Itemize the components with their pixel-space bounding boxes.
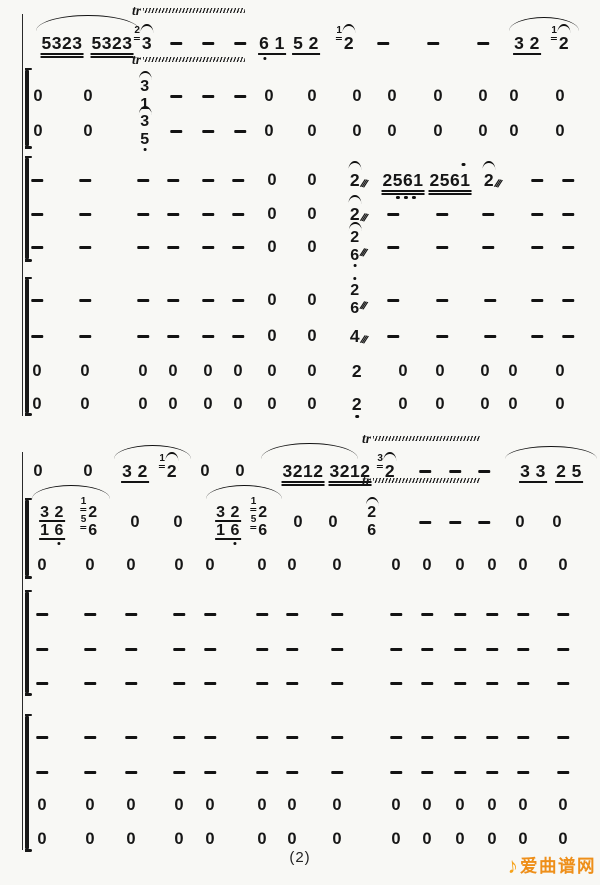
rest-zero: 0 bbox=[422, 555, 431, 575]
rest-zero: 0 bbox=[264, 86, 273, 106]
note-cell: 12 bbox=[88, 504, 97, 522]
dash-rest bbox=[167, 213, 179, 217]
note-digits: 2 bbox=[352, 394, 362, 414]
dash-rest bbox=[427, 42, 439, 46]
trill-mark: tr bbox=[362, 433, 480, 445]
dash-rest bbox=[84, 648, 96, 652]
dash-rest bbox=[562, 179, 574, 183]
note-cell: 3 bbox=[140, 113, 149, 131]
tremolo-icon: /// bbox=[360, 301, 367, 312]
tie-arc-icon bbox=[482, 161, 495, 170]
rest-zero: 0 bbox=[487, 829, 496, 849]
rest-zero: 0 bbox=[433, 86, 442, 106]
dash-rest bbox=[79, 335, 91, 339]
dash-rest bbox=[562, 335, 574, 339]
note-cell: 12 bbox=[167, 461, 177, 481]
notation-row: 002/// bbox=[0, 204, 600, 224]
tie-arc-icon bbox=[139, 71, 152, 80]
note-digits: 3 bbox=[140, 80, 149, 94]
note-cell: 3 bbox=[140, 78, 149, 96]
dash-rest bbox=[486, 613, 498, 617]
dash-rest bbox=[484, 335, 496, 339]
dash-rest bbox=[36, 736, 48, 740]
dash-rest bbox=[202, 179, 214, 183]
notation-row: tr003100000000 bbox=[0, 86, 600, 106]
slur-arc bbox=[32, 485, 110, 499]
note-digits: 3212 bbox=[283, 461, 324, 481]
dash-rest bbox=[286, 648, 298, 652]
rest-zero: 0 bbox=[267, 394, 276, 414]
note-digits: 4 bbox=[350, 326, 360, 346]
dash-rest bbox=[517, 682, 529, 686]
note-digits: 2 bbox=[258, 506, 267, 520]
rest-zero: 0 bbox=[257, 829, 266, 849]
octave-dot-below bbox=[353, 264, 356, 267]
dash-rest bbox=[234, 42, 246, 46]
dash-rest bbox=[484, 299, 496, 303]
dash-rest bbox=[531, 213, 543, 217]
note-cell: 3 2 bbox=[514, 33, 540, 53]
dash-rest bbox=[202, 246, 214, 250]
dash-rest bbox=[449, 521, 461, 525]
dash-rest bbox=[204, 771, 216, 775]
rest-zero: 0 bbox=[37, 829, 46, 849]
note-cell: 3 2 bbox=[40, 504, 64, 522]
rest-zero: 0 bbox=[287, 829, 296, 849]
rest-zero: 0 bbox=[307, 326, 316, 346]
rest-zero: 0 bbox=[293, 512, 302, 532]
rest-zero: 0 bbox=[267, 170, 276, 190]
dash-rest bbox=[125, 648, 137, 652]
rest-zero: 0 bbox=[391, 829, 400, 849]
note-digits: 6 bbox=[367, 524, 376, 538]
dash-rest bbox=[84, 613, 96, 617]
dash-rest bbox=[202, 213, 214, 217]
dash-rest bbox=[173, 613, 185, 617]
note-digits: 2 bbox=[350, 231, 359, 245]
dash-rest bbox=[331, 736, 343, 740]
notation-row: 0026/// bbox=[0, 237, 600, 257]
dash-rest bbox=[436, 213, 448, 217]
note-cell: 1 6 bbox=[40, 522, 64, 540]
notation-row: 00000000000000 bbox=[0, 555, 600, 575]
rest-zero: 0 bbox=[32, 361, 41, 381]
score-sheet: tr53235323236 15 2123 212tr0031000000000… bbox=[0, 0, 600, 885]
rest-zero: 0 bbox=[83, 461, 92, 481]
dash-rest bbox=[137, 335, 149, 339]
dash-rest bbox=[454, 648, 466, 652]
chord-stack: 1256 bbox=[258, 504, 267, 540]
dash-rest bbox=[390, 682, 402, 686]
grace-note: 5 bbox=[251, 515, 257, 529]
dash-rest bbox=[557, 771, 569, 775]
note-digits: 1 6 bbox=[216, 524, 240, 538]
dash-rest bbox=[31, 335, 43, 339]
octave-dots-below bbox=[57, 542, 60, 545]
note-digits: 6 1 bbox=[259, 33, 285, 53]
note-digits: 1 6 bbox=[40, 524, 64, 538]
tie-arc-icon bbox=[366, 497, 379, 506]
octave-dots-below bbox=[353, 264, 356, 267]
note-digits: 3 2 bbox=[216, 506, 240, 520]
dash-rest bbox=[486, 682, 498, 686]
dash-rest bbox=[173, 771, 185, 775]
trill-label: tr bbox=[132, 54, 141, 66]
grace-note: 2 bbox=[134, 26, 140, 40]
rest-zero: 0 bbox=[398, 361, 407, 381]
notation-row bbox=[0, 604, 600, 624]
rest-zero: 0 bbox=[487, 795, 496, 815]
rest-zero: 0 bbox=[138, 361, 147, 381]
dash-rest bbox=[204, 648, 216, 652]
dash-rest bbox=[331, 771, 343, 775]
trill-mark: tr bbox=[132, 54, 245, 66]
rest-zero: 0 bbox=[126, 829, 135, 849]
rest-zero: 0 bbox=[478, 121, 487, 141]
dash-rest bbox=[531, 299, 543, 303]
dash-rest bbox=[557, 648, 569, 652]
dash-rest bbox=[557, 613, 569, 617]
dash-rest bbox=[421, 771, 433, 775]
note-digits: 2 bbox=[559, 33, 569, 53]
trill-wavy-line bbox=[373, 436, 480, 441]
rest-zero: 0 bbox=[480, 361, 489, 381]
rest-zero: 0 bbox=[352, 121, 361, 141]
notation-row: tr3 21 61256003 21 61256002600 bbox=[0, 512, 600, 532]
rest-zero: 0 bbox=[267, 204, 276, 224]
trill-mark: tr bbox=[132, 5, 245, 17]
dash-rest bbox=[482, 246, 494, 250]
octave-dots-below bbox=[263, 57, 266, 60]
dash-rest bbox=[256, 771, 268, 775]
rest-zero: 0 bbox=[478, 86, 487, 106]
tremolo-icon: /// bbox=[360, 335, 367, 346]
tie-arc-icon bbox=[383, 452, 396, 461]
rest-zero: 0 bbox=[455, 829, 464, 849]
dash-rest bbox=[387, 299, 399, 303]
rest-zero: 0 bbox=[168, 394, 177, 414]
rest-zero: 0 bbox=[391, 555, 400, 575]
rest-zero: 0 bbox=[267, 237, 276, 257]
dash-rest bbox=[436, 246, 448, 250]
dash-rest bbox=[387, 213, 399, 217]
dash-rest bbox=[36, 682, 48, 686]
rest-zero: 0 bbox=[558, 829, 567, 849]
note-cell: 5 2 bbox=[293, 33, 319, 53]
note-cell: 6 1 bbox=[259, 33, 285, 53]
note-digits: 2561 bbox=[383, 170, 424, 190]
dash-rest bbox=[137, 213, 149, 217]
rest-zero: 0 bbox=[83, 86, 92, 106]
dash-rest bbox=[173, 682, 185, 686]
rest-zero: 0 bbox=[455, 795, 464, 815]
rest-zero: 0 bbox=[33, 461, 42, 481]
rest-zero: 0 bbox=[307, 394, 316, 414]
note-cell: 56 bbox=[258, 522, 267, 540]
notation-row: 00000000000000 bbox=[0, 795, 600, 815]
rest-zero: 0 bbox=[174, 795, 183, 815]
dash-rest bbox=[256, 682, 268, 686]
rest-zero: 0 bbox=[422, 829, 431, 849]
octave-dot-below bbox=[143, 148, 146, 151]
dash-rest bbox=[421, 613, 433, 617]
rest-zero: 0 bbox=[130, 512, 139, 532]
octave-dot-below bbox=[263, 57, 266, 60]
dash-rest bbox=[31, 299, 43, 303]
notation-row: tr53235323236 15 2123 212 bbox=[0, 33, 600, 53]
note-digits: 6 bbox=[258, 524, 267, 538]
rest-zero: 0 bbox=[33, 86, 42, 106]
dash-rest bbox=[421, 682, 433, 686]
dash-rest bbox=[173, 736, 185, 740]
notation-row bbox=[0, 639, 600, 659]
note-digits: 2 bbox=[484, 170, 494, 190]
octave-dot-below bbox=[412, 196, 415, 199]
rest-zero: 0 bbox=[174, 829, 183, 849]
rest-zero: 0 bbox=[552, 512, 561, 532]
dash-rest bbox=[167, 179, 179, 183]
rest-zero: 0 bbox=[391, 795, 400, 815]
dash-rest bbox=[390, 736, 402, 740]
dash-rest bbox=[232, 299, 244, 303]
notation-row: 002///256125612/// bbox=[0, 170, 600, 190]
note-digits: 5 bbox=[140, 133, 149, 147]
grace-note: 1 bbox=[336, 26, 342, 40]
dash-rest bbox=[202, 335, 214, 339]
dash-rest bbox=[286, 771, 298, 775]
dash-rest bbox=[170, 95, 182, 99]
note-digits: 6 bbox=[88, 524, 97, 538]
rest-zero: 0 bbox=[307, 86, 316, 106]
note-digits: 3 2 bbox=[514, 33, 540, 53]
dash-rest bbox=[256, 648, 268, 652]
dash-rest bbox=[79, 179, 91, 183]
dash-rest bbox=[486, 648, 498, 652]
dash-rest bbox=[234, 130, 246, 134]
dash-rest bbox=[454, 736, 466, 740]
note-cell: 4/// bbox=[350, 326, 360, 346]
rest-zero: 0 bbox=[518, 829, 527, 849]
slur-arc bbox=[36, 15, 140, 31]
rest-zero: 0 bbox=[508, 394, 517, 414]
dash-rest bbox=[419, 521, 431, 525]
dash-rest bbox=[202, 299, 214, 303]
dash-rest bbox=[36, 648, 48, 652]
dash-rest bbox=[31, 179, 43, 183]
rest-zero: 0 bbox=[205, 829, 214, 849]
rest-zero: 0 bbox=[83, 121, 92, 141]
dash-rest bbox=[234, 95, 246, 99]
rest-zero: 0 bbox=[307, 361, 316, 381]
note-cell: 2 bbox=[352, 361, 362, 381]
dash-rest bbox=[167, 246, 179, 250]
tremolo-icon: /// bbox=[360, 179, 367, 190]
dash-rest bbox=[531, 179, 543, 183]
rest-zero: 0 bbox=[174, 555, 183, 575]
tie-arc-icon bbox=[342, 24, 355, 33]
octave-dots-below bbox=[233, 542, 236, 545]
octave-dots-below bbox=[143, 148, 146, 151]
slur-arc bbox=[261, 443, 358, 459]
dash-rest bbox=[562, 299, 574, 303]
note-digits: 2 bbox=[367, 506, 376, 520]
notation-row: 004/// bbox=[0, 326, 600, 346]
rest-zero: 0 bbox=[555, 121, 564, 141]
dash-rest bbox=[232, 335, 244, 339]
chord-stack: 26/// bbox=[350, 229, 359, 265]
rest-zero: 0 bbox=[509, 86, 518, 106]
rest-zero: 0 bbox=[387, 86, 396, 106]
dash-rest bbox=[478, 521, 490, 525]
music-note-icon: ♪ bbox=[506, 854, 519, 877]
trill-mark: tr bbox=[362, 475, 480, 487]
grace-note: 1 bbox=[251, 497, 257, 511]
dash-rest bbox=[557, 682, 569, 686]
dash-rest bbox=[377, 42, 389, 46]
rest-zero: 0 bbox=[422, 795, 431, 815]
dash-rest bbox=[204, 736, 216, 740]
dash-rest bbox=[531, 335, 543, 339]
note-cell: 23 bbox=[142, 33, 152, 53]
dash-rest bbox=[137, 246, 149, 250]
rest-zero: 0 bbox=[328, 512, 337, 532]
note-cell: 5 bbox=[140, 131, 149, 149]
dash-rest bbox=[137, 179, 149, 183]
note-cell: 2 bbox=[350, 229, 359, 247]
rest-zero: 0 bbox=[509, 121, 518, 141]
note-cell: 2/// bbox=[350, 170, 360, 190]
dash-rest bbox=[170, 130, 182, 134]
note-cell: 2 5 bbox=[556, 461, 582, 481]
dash-rest bbox=[449, 470, 461, 474]
dash-rest bbox=[84, 771, 96, 775]
notation-row: 00000000200000 bbox=[0, 394, 600, 414]
dash-rest bbox=[202, 95, 214, 99]
dash-rest bbox=[390, 771, 402, 775]
rest-zero: 0 bbox=[307, 170, 316, 190]
dash-rest bbox=[36, 771, 48, 775]
dash-rest bbox=[454, 771, 466, 775]
grace-note: 1 bbox=[551, 26, 557, 40]
rest-zero: 0 bbox=[85, 795, 94, 815]
chord-stack: 26 bbox=[367, 504, 376, 540]
note-digits: 2 bbox=[352, 361, 362, 381]
rest-zero: 0 bbox=[487, 555, 496, 575]
dash-rest bbox=[331, 648, 343, 652]
dash-rest bbox=[331, 682, 343, 686]
note-digits: 2 bbox=[344, 33, 354, 53]
rest-zero: 0 bbox=[332, 555, 341, 575]
note-cell: 5323 bbox=[92, 33, 133, 53]
dash-rest bbox=[477, 42, 489, 46]
dash-rest bbox=[232, 179, 244, 183]
rest-zero: 0 bbox=[200, 461, 209, 481]
note-digits: 2 bbox=[350, 204, 360, 224]
octave-dot-below bbox=[396, 196, 399, 199]
dash-rest bbox=[531, 246, 543, 250]
dash-rest bbox=[517, 771, 529, 775]
note-cell: 12 bbox=[258, 504, 267, 522]
dash-rest bbox=[256, 613, 268, 617]
rest-zero: 0 bbox=[435, 394, 444, 414]
dash-rest bbox=[286, 736, 298, 740]
trill-label: tr bbox=[362, 433, 371, 445]
dash-rest bbox=[202, 42, 214, 46]
rest-zero: 0 bbox=[85, 555, 94, 575]
octave-dot-below bbox=[355, 415, 358, 418]
rest-zero: 0 bbox=[80, 394, 89, 414]
note-cell: 56 bbox=[88, 522, 97, 540]
notation-row: 0026/// bbox=[0, 290, 600, 310]
rest-zero: 0 bbox=[267, 361, 276, 381]
note-cell: 5323 bbox=[42, 33, 83, 53]
rest-zero: 0 bbox=[508, 361, 517, 381]
dash-rest bbox=[436, 335, 448, 339]
chord-stack: 3 21 6 bbox=[216, 504, 240, 540]
tremolo-icon: /// bbox=[360, 213, 367, 224]
dash-rest bbox=[517, 648, 529, 652]
dash-rest bbox=[517, 736, 529, 740]
rest-zero: 0 bbox=[203, 394, 212, 414]
notation-row bbox=[0, 673, 600, 693]
rest-zero: 0 bbox=[307, 121, 316, 141]
rest-zero: 0 bbox=[307, 204, 316, 224]
slur-arc bbox=[114, 445, 191, 459]
dash-rest bbox=[167, 299, 179, 303]
rest-zero: 0 bbox=[37, 555, 46, 575]
slur-arc bbox=[505, 446, 597, 459]
dash-rest bbox=[202, 130, 214, 134]
dash-rest bbox=[286, 682, 298, 686]
note-digits: 3 bbox=[140, 115, 149, 129]
note-digits: 2 bbox=[350, 170, 360, 190]
dash-rest bbox=[232, 246, 244, 250]
note-cell: 6 bbox=[350, 247, 359, 265]
octave-dot-below bbox=[233, 542, 236, 545]
note-cell: 12 bbox=[559, 33, 569, 53]
rest-zero: 0 bbox=[433, 121, 442, 141]
rest-zero: 0 bbox=[267, 326, 276, 346]
note-cell: 2/// bbox=[350, 204, 360, 224]
note-cell: 3 3 bbox=[520, 461, 546, 481]
dash-rest bbox=[204, 613, 216, 617]
note-digits: 3 2 bbox=[122, 461, 148, 481]
note-digits: 6 bbox=[350, 302, 359, 316]
dash-rest bbox=[421, 648, 433, 652]
dash-rest bbox=[232, 213, 244, 217]
notation-row bbox=[0, 727, 600, 747]
rest-zero: 0 bbox=[33, 121, 42, 141]
note-digits: 2 bbox=[167, 461, 177, 481]
note-digits: 2561 bbox=[430, 170, 471, 190]
rest-zero: 0 bbox=[257, 555, 266, 575]
site-watermark: ♪ 爱曲谱网 bbox=[507, 853, 596, 878]
rest-zero: 0 bbox=[37, 795, 46, 815]
grace-note: 1 bbox=[159, 454, 165, 468]
trill-wavy-line bbox=[373, 478, 480, 483]
rest-zero: 0 bbox=[168, 361, 177, 381]
dash-rest bbox=[256, 736, 268, 740]
note-cell: 2/// bbox=[484, 170, 494, 190]
dash-rest bbox=[390, 648, 402, 652]
notation-row bbox=[0, 762, 600, 782]
rest-zero: 0 bbox=[558, 795, 567, 815]
chord-stack: 26/// bbox=[350, 282, 359, 318]
rest-zero: 0 bbox=[287, 795, 296, 815]
rest-zero: 0 bbox=[287, 555, 296, 575]
dash-rest bbox=[436, 299, 448, 303]
rest-zero: 0 bbox=[205, 555, 214, 575]
